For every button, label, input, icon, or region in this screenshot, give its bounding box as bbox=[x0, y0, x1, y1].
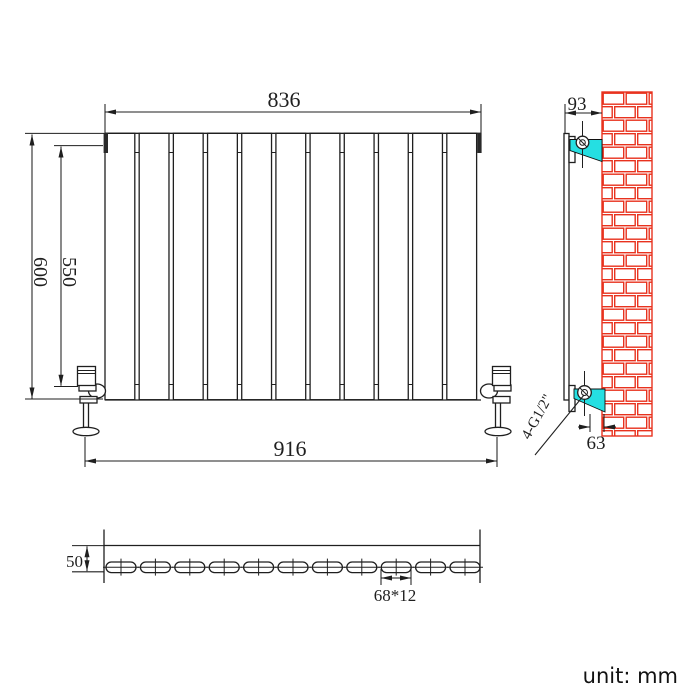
dimension-916: 916 bbox=[85, 436, 497, 467]
dim-label-93: 93 bbox=[568, 94, 587, 115]
dimension-68x12: 68*12 bbox=[374, 569, 417, 605]
dim-label-63: 63 bbox=[587, 433, 606, 454]
panel bbox=[378, 133, 408, 399]
radiator-dimension-drawing: 836 600 550 916 bbox=[0, 0, 700, 700]
dim-label-550: 550 bbox=[58, 257, 80, 287]
panel bbox=[413, 133, 443, 399]
panel bbox=[447, 133, 477, 399]
side-view: 93 63 4-G1/2" bbox=[519, 92, 652, 455]
panel bbox=[105, 133, 135, 399]
right-valve-nut bbox=[493, 397, 510, 404]
left-valve bbox=[73, 367, 106, 436]
dim-label-916: 916 bbox=[274, 436, 307, 461]
radiator-panels bbox=[105, 133, 477, 399]
dim-label-68x12: 68*12 bbox=[374, 586, 417, 605]
panel bbox=[276, 133, 306, 399]
thread-label: 4-G1/2" bbox=[519, 392, 557, 442]
panel bbox=[310, 133, 340, 399]
right-valve bbox=[481, 367, 512, 436]
dimension-50: 50 bbox=[66, 546, 104, 572]
unit-note: unit: mm bbox=[583, 664, 678, 688]
panel-cross-sections bbox=[103, 559, 483, 576]
panel bbox=[208, 133, 238, 399]
dim-label-836: 836 bbox=[268, 87, 301, 112]
dim-label-600: 600 bbox=[29, 257, 51, 287]
dim-label-50: 50 bbox=[66, 552, 83, 571]
panel bbox=[242, 133, 272, 399]
left-valve-head bbox=[78, 367, 96, 386]
drawing-canvas: 836 600 550 916 bbox=[0, 0, 700, 700]
brick-wall bbox=[602, 92, 652, 436]
panel bbox=[344, 133, 374, 399]
header-end-cap-right bbox=[477, 133, 481, 153]
panel bbox=[173, 133, 203, 399]
right-valve-floor-flange bbox=[485, 427, 511, 435]
dimension-550: 550 bbox=[54, 146, 103, 387]
right-valve-head bbox=[493, 367, 511, 386]
dimension-836: 836 bbox=[105, 87, 481, 133]
header-end-cap-left bbox=[104, 133, 108, 153]
dimension-93: 93 bbox=[565, 94, 602, 133]
bottom-section-view: 50 68*12 bbox=[66, 530, 483, 606]
panel bbox=[139, 133, 169, 399]
left-valve-floor-flange bbox=[73, 427, 99, 435]
bottom-wall-bracket bbox=[574, 371, 605, 416]
left-valve-nut bbox=[80, 397, 97, 404]
front-view: 836 600 550 916 bbox=[25, 87, 511, 467]
radiator-side-profile bbox=[564, 134, 569, 401]
